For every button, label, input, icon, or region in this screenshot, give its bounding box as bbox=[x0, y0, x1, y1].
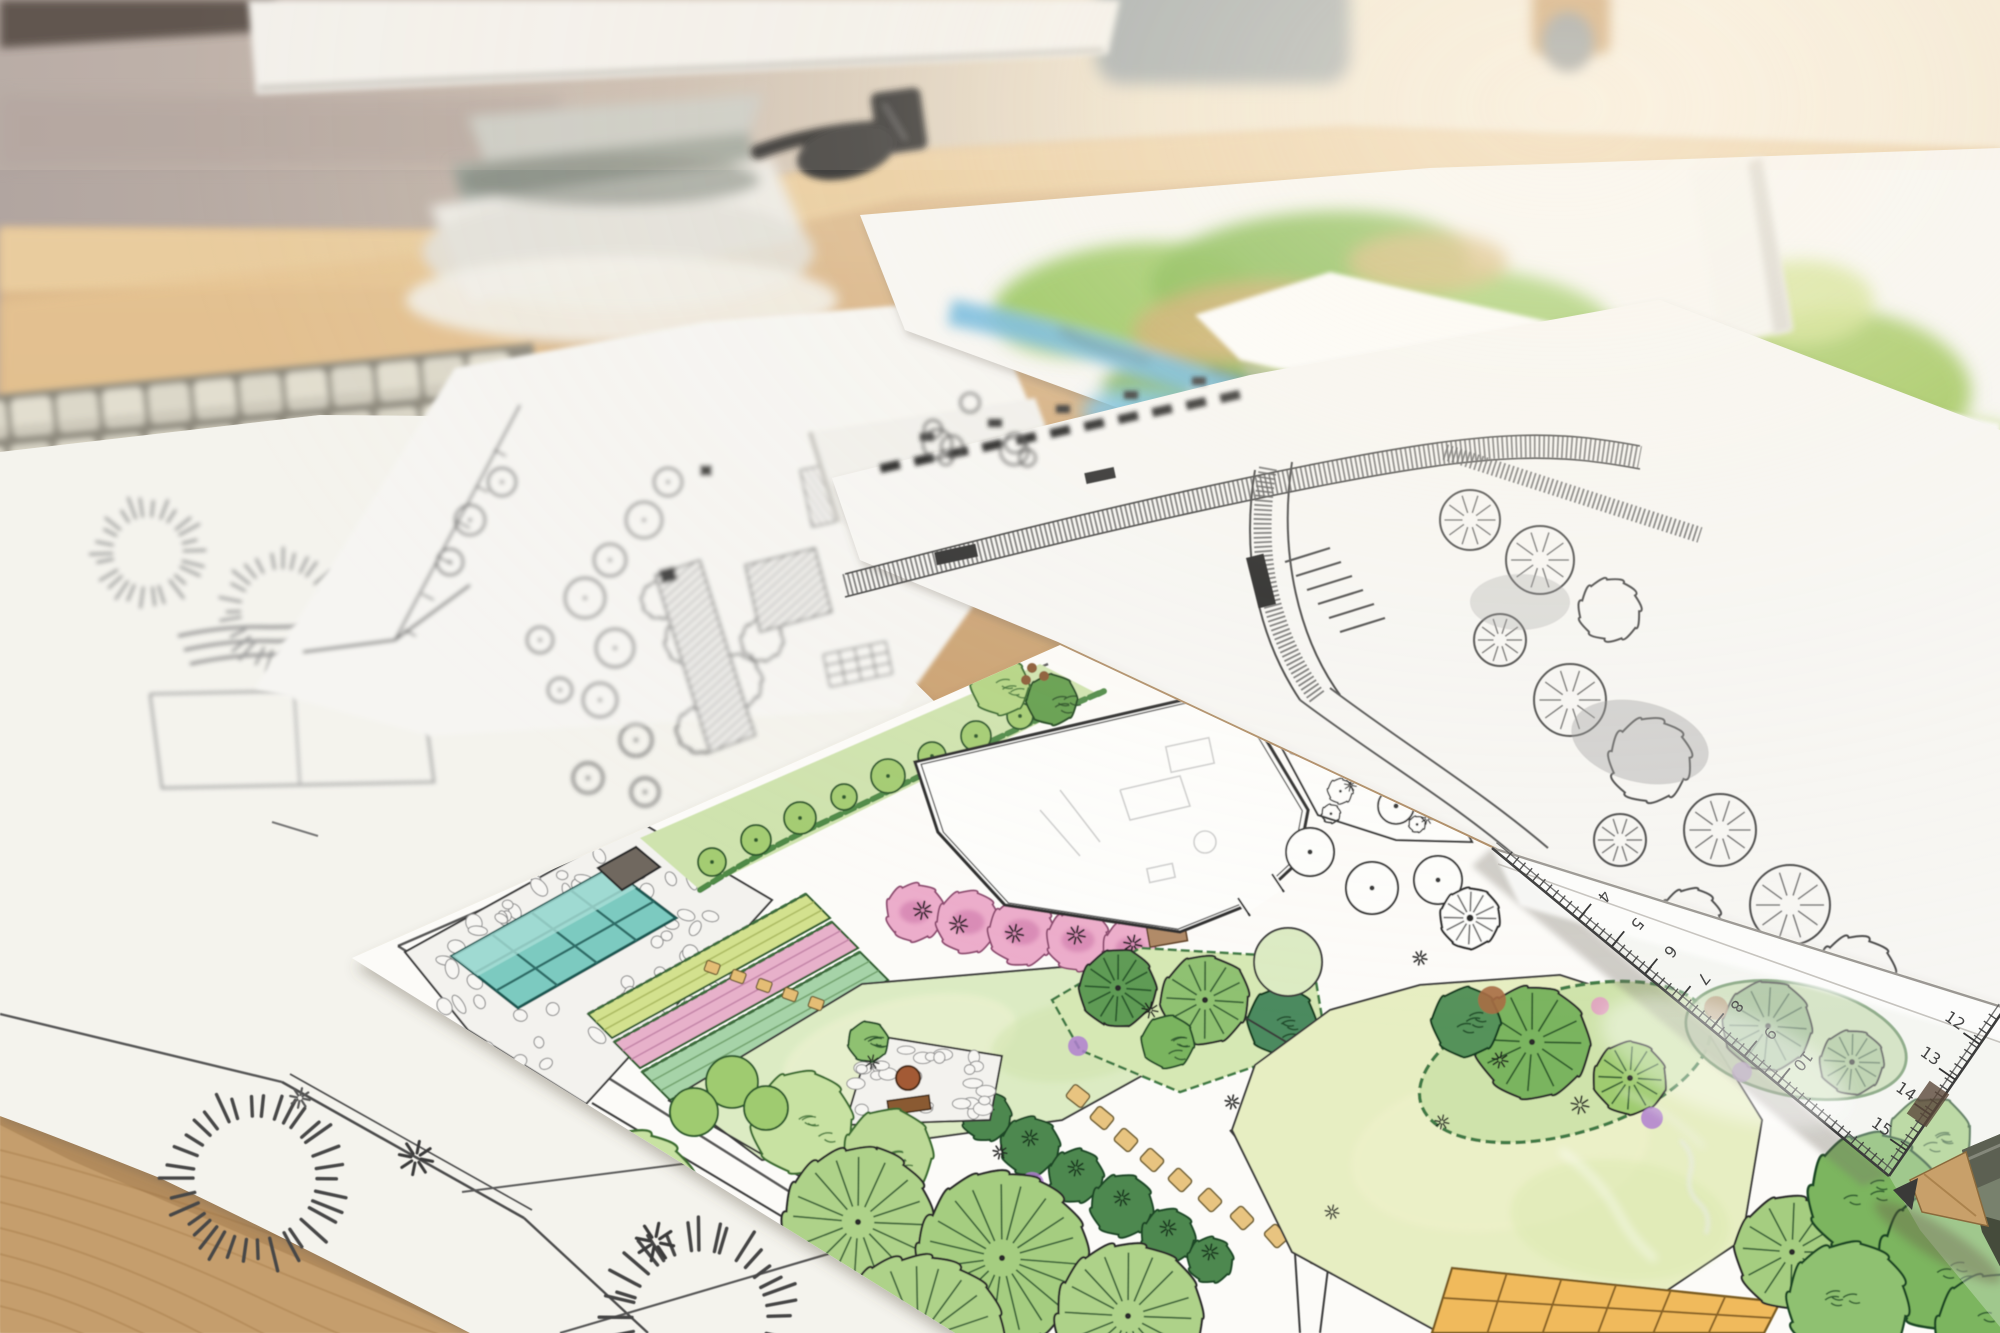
lighting-overlay bbox=[0, 0, 2000, 1333]
photo-canvas: 4567891015141312 bbox=[0, 0, 2000, 1333]
desk-photo: 4567891015141312 bbox=[0, 0, 2000, 1333]
top-haze bbox=[0, 0, 2000, 170]
warm-glow bbox=[0, 0, 2000, 1333]
